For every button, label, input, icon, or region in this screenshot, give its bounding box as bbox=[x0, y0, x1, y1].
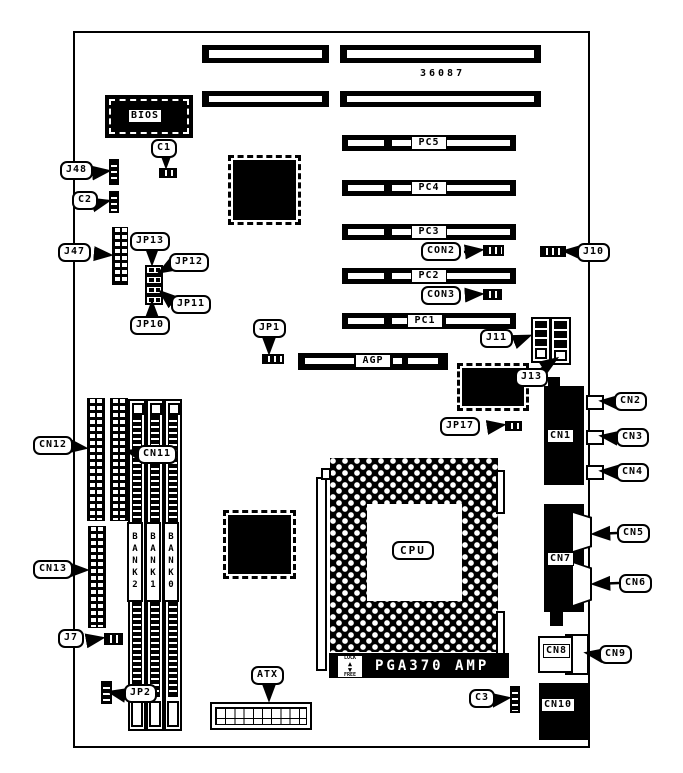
callout-c2: C2 bbox=[72, 191, 98, 210]
callout-jp2: JP2 bbox=[124, 684, 157, 703]
motherboard-diagram: 36087 BIOS PC5 PC4 PC3 PC2 PC1 bbox=[0, 0, 683, 773]
callout-jp11: JP11 bbox=[171, 295, 211, 314]
callout-j10: J10 bbox=[577, 243, 610, 262]
callout-jp1: JP1 bbox=[253, 319, 286, 338]
callout-cn13: CN13 bbox=[33, 560, 73, 579]
callout-cn9: CN9 bbox=[599, 645, 632, 664]
callout-j13: J13 bbox=[515, 368, 548, 387]
callout-cn5: CN5 bbox=[617, 524, 650, 543]
callout-con3: CON3 bbox=[421, 286, 461, 305]
callout-c3: C3 bbox=[469, 689, 495, 708]
callout-jp12: JP12 bbox=[169, 253, 209, 272]
callout-j47: J47 bbox=[58, 243, 91, 262]
callout-cn2: CN2 bbox=[614, 392, 647, 411]
callout-j7: J7 bbox=[58, 629, 84, 648]
callout-j11: J11 bbox=[480, 329, 513, 348]
callout-jp13: JP13 bbox=[130, 232, 170, 251]
callout-c1: C1 bbox=[151, 139, 177, 158]
callout-cn6: CN6 bbox=[619, 574, 652, 593]
callout-cn11: CN11 bbox=[137, 445, 177, 464]
callout-con2: CON2 bbox=[421, 242, 461, 261]
leader-lines bbox=[0, 0, 683, 773]
callout-cn3: CN3 bbox=[616, 428, 649, 447]
callout-j48: J48 bbox=[60, 161, 93, 180]
callout-atx: ATX bbox=[251, 666, 284, 685]
callout-cn4: CN4 bbox=[616, 463, 649, 482]
callout-cn12: CN12 bbox=[33, 436, 73, 455]
callout-jp10: JP10 bbox=[130, 316, 170, 335]
callout-jp17: JP17 bbox=[440, 417, 480, 436]
